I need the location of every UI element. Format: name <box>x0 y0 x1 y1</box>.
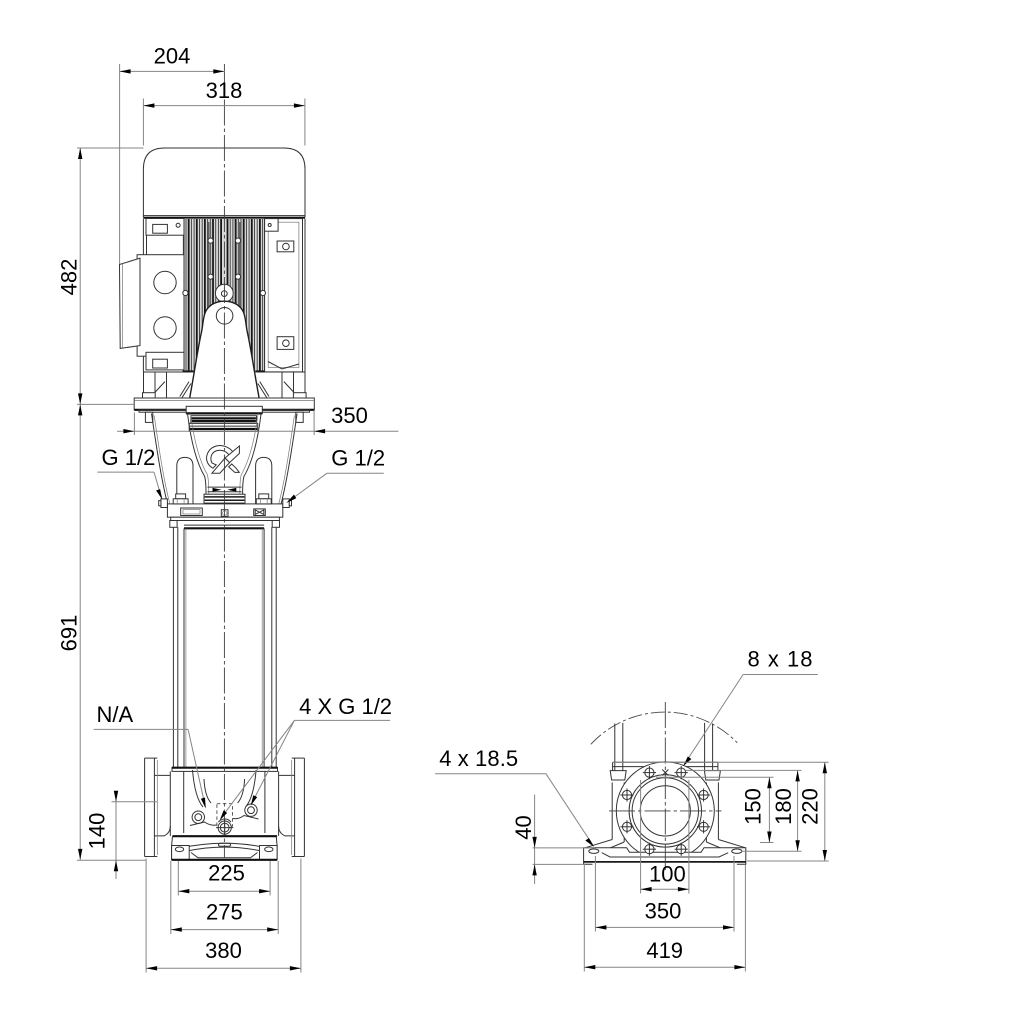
svg-text:G 1/2: G 1/2 <box>331 446 385 471</box>
svg-text:180: 180 <box>771 788 796 825</box>
svg-text:150: 150 <box>740 788 765 825</box>
svg-text:482: 482 <box>57 259 82 296</box>
svg-text:100: 100 <box>649 862 686 887</box>
svg-text:4 X G 1/2: 4 X G 1/2 <box>299 694 392 719</box>
svg-text:220: 220 <box>798 788 823 825</box>
svg-text:4 x 18.5: 4 x 18.5 <box>439 746 518 771</box>
svg-text:691: 691 <box>57 615 82 652</box>
svg-text:350: 350 <box>331 403 368 428</box>
svg-text:204: 204 <box>154 44 191 69</box>
svg-text:N/A: N/A <box>97 702 134 727</box>
svg-text:350: 350 <box>645 898 682 923</box>
svg-text:140: 140 <box>85 813 110 850</box>
svg-text:275: 275 <box>206 900 243 925</box>
svg-text:40: 40 <box>511 815 536 839</box>
svg-text:G 1/2: G 1/2 <box>102 445 156 470</box>
svg-text:318: 318 <box>206 78 243 103</box>
svg-text:380: 380 <box>205 938 242 963</box>
svg-text:225: 225 <box>208 860 245 885</box>
svg-text:419: 419 <box>646 938 683 963</box>
svg-text:8 x 18: 8 x 18 <box>748 646 814 671</box>
